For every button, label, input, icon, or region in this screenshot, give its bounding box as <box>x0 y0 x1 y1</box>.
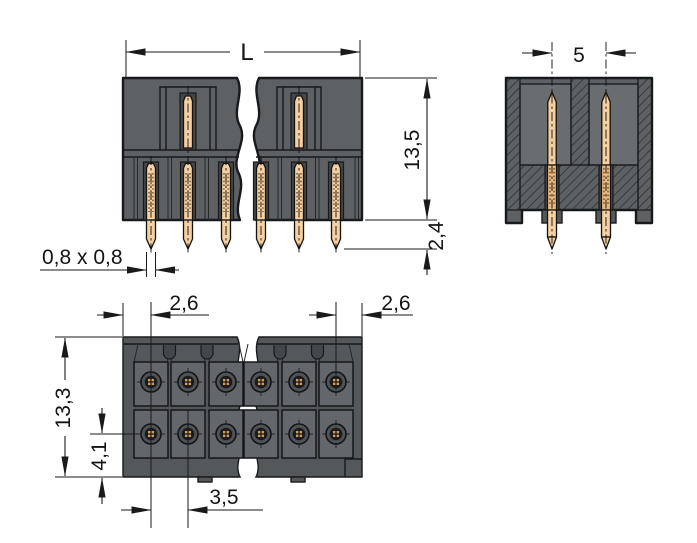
dim-row-spacing: 5 <box>522 44 636 67</box>
front-mating-pin <box>291 86 307 154</box>
contact-cells <box>134 362 353 458</box>
front-solder-pin <box>292 156 307 255</box>
dim-label-last-pin-to-edge: 2,6 <box>381 292 410 315</box>
dim-overall-length: L <box>126 39 360 77</box>
side-pin <box>548 42 557 254</box>
side-view <box>506 42 652 254</box>
connector-dimension-drawing: L 5 13,5 2,4 0,8 x 0,8 <box>0 0 697 543</box>
dim-label-overall-depth: 13,3 <box>52 388 75 429</box>
front-housing-right-segment <box>254 78 362 220</box>
bottom-view <box>123 337 362 482</box>
dim-overall-depth: 13,3 <box>52 337 122 477</box>
technical-drawing-page: L 5 13,5 2,4 0,8 x 0,8 <box>0 0 697 543</box>
dim-label-pin-pitch: 3,5 <box>209 486 238 509</box>
dim-label-row-offset: 4,1 <box>88 441 111 470</box>
front-view <box>123 78 362 255</box>
dim-pin-cross-section: 0,8 x 0,8 <box>40 246 179 277</box>
dim-height-above-board: 13,5 <box>365 78 437 220</box>
dim-pin-protrusion: 2,4 <box>344 221 448 275</box>
dim-label-height-above-board: 13,5 <box>401 130 424 171</box>
dim-label-row-spacing: 5 <box>573 44 585 67</box>
front-solder-pin <box>254 156 269 255</box>
dim-label-edge-to-first-pin: 2,6 <box>169 292 198 315</box>
dim-label-pin-cross-section: 0,8 x 0,8 <box>42 246 123 269</box>
side-pin <box>602 42 611 254</box>
dim-label-overall-length: L <box>240 39 253 66</box>
front-mating-pin <box>180 86 196 154</box>
front-solder-pin <box>329 156 344 255</box>
dim-label-pin-protrusion: 2,4 <box>425 221 448 251</box>
front-solder-pin <box>181 156 196 255</box>
front-solder-pin <box>144 156 159 255</box>
front-solder-pin <box>219 156 234 255</box>
